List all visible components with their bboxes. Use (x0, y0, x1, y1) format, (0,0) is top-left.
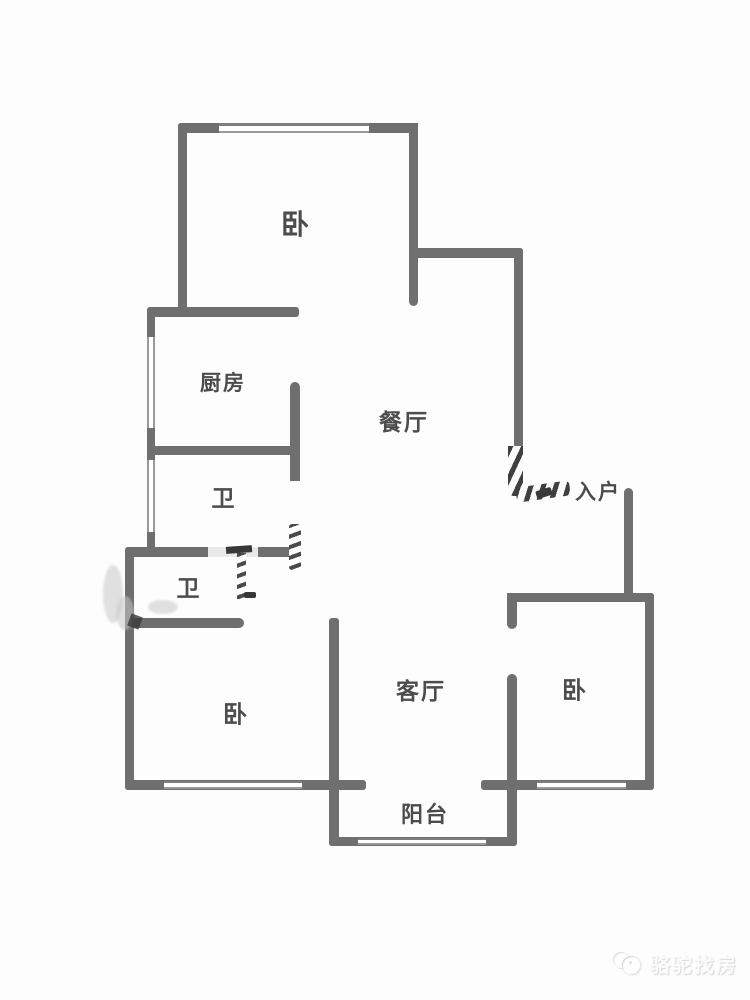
room-label-bedroom-top: 卧 (281, 203, 311, 243)
wall (409, 123, 418, 306)
wall (413, 248, 523, 258)
wall (147, 307, 299, 317)
wall (147, 446, 299, 455)
wall (645, 593, 654, 790)
wall (125, 547, 134, 790)
wall (624, 488, 633, 598)
window (164, 781, 302, 789)
window (358, 838, 486, 845)
room-label-kitchen: 厨房 (200, 367, 246, 397)
watermark-smudge (244, 592, 256, 598)
window (147, 460, 155, 532)
floor-plan: 卧 厨房 餐厅 卫 入户 卫 卧 客厅 卧 阳台 骆驼找房 (0, 0, 750, 1000)
brand-watermark: 骆驼找房 (613, 948, 738, 978)
wall (290, 382, 300, 481)
room-label-bedroom-left: 卧 (223, 695, 249, 730)
room-label-entry: 入户 (575, 476, 621, 506)
room-label-bathroom-upper: 卫 (212, 479, 237, 513)
camel-logo-icon (613, 948, 643, 978)
watermark-brand: 骆驼找房 (650, 949, 738, 978)
wall (514, 248, 523, 448)
room-label-dining-room: 餐厅 (379, 403, 429, 437)
wall (128, 618, 244, 628)
window (147, 337, 155, 428)
wall (507, 674, 517, 786)
room-label-balcony: 阳台 (401, 797, 449, 829)
window (537, 781, 626, 789)
window (219, 123, 369, 133)
watermark-smudge (148, 600, 178, 614)
room-label-bathroom-lower: 卫 (177, 569, 202, 603)
wall (507, 593, 517, 629)
room-label-bedroom-right: 卧 (562, 671, 588, 706)
wall (178, 123, 187, 317)
wall (329, 618, 339, 846)
room-label-living-room: 客厅 (396, 672, 446, 706)
watermark-smudge (289, 524, 301, 570)
